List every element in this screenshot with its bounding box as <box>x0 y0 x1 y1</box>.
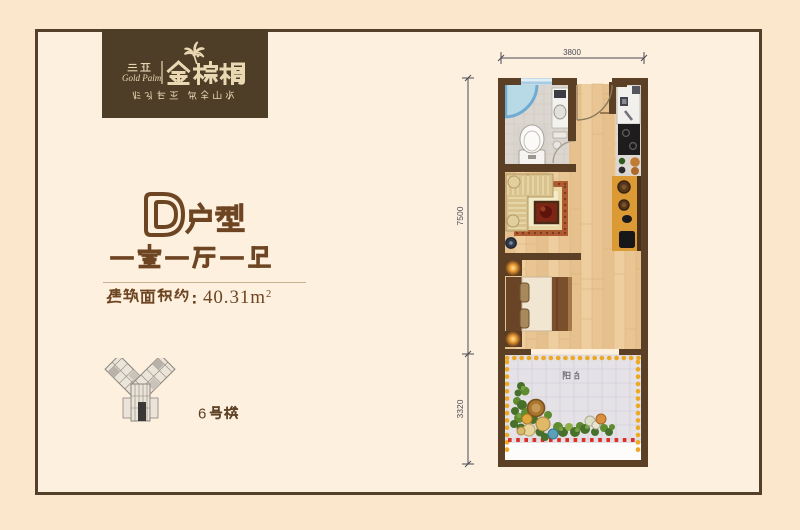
svg-text:3320: 3320 <box>455 399 465 418</box>
svg-text:7500: 7500 <box>455 206 465 225</box>
svg-text:2: 2 <box>266 289 271 300</box>
svg-text:6: 6 <box>198 406 206 423</box>
svg-text:3800: 3800 <box>563 48 581 57</box>
svg-text:Gold Palm: Gold Palm <box>122 73 162 83</box>
svg-text:40.31m: 40.31m <box>203 287 266 308</box>
